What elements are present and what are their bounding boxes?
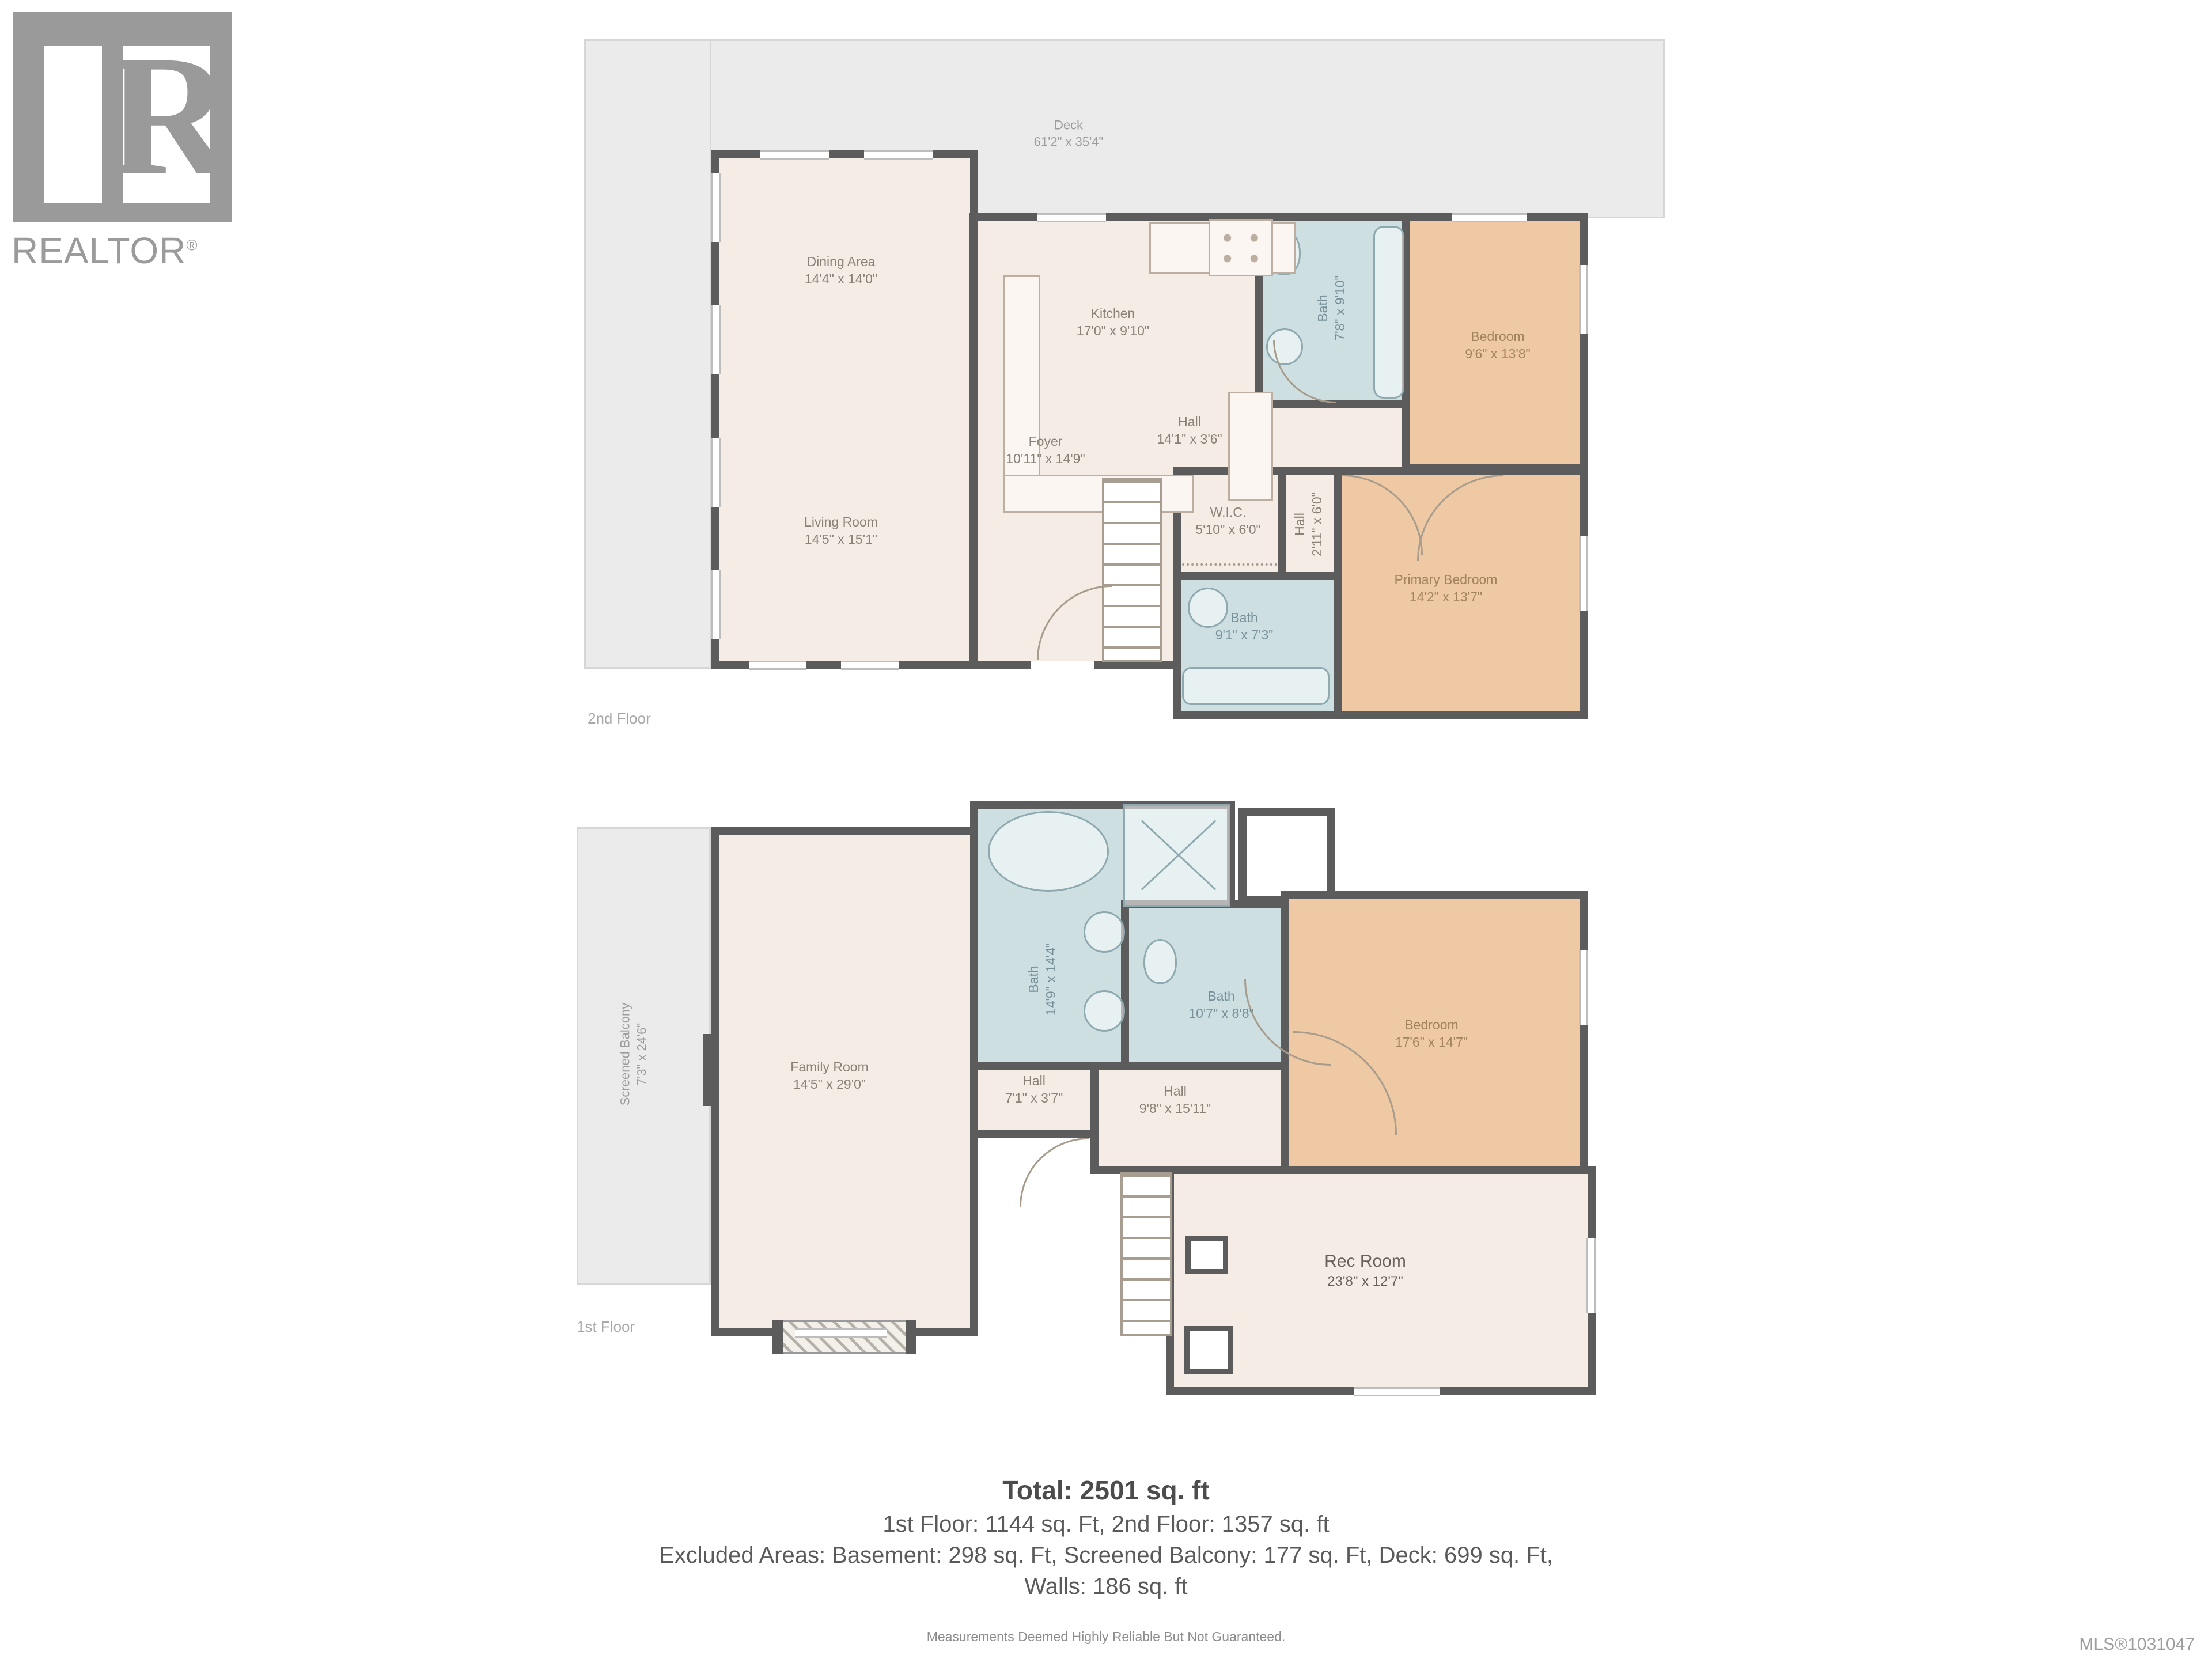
room-label-rec: Rec Room23'8" x 12'7": [1324, 1250, 1406, 1290]
window: [711, 173, 721, 242]
room-label-foyer: Foyer10'11" x 14'9": [1006, 433, 1085, 468]
window: [1586, 1238, 1596, 1313]
porch-post: [772, 1320, 783, 1354]
utility-box: [1185, 1236, 1228, 1274]
room-label-family: Family Room14'5" x 29'0": [790, 1059, 868, 1093]
bathtub: [1373, 226, 1404, 399]
closet-rod: [1182, 563, 1277, 566]
closet-1f: [1238, 808, 1335, 904]
room-label-hall-big: Hall9'8" x 15'11": [1139, 1083, 1211, 1118]
toilet: [1143, 939, 1177, 984]
window: [1354, 1387, 1440, 1396]
window: [1579, 536, 1588, 611]
room-label-kitchen: Kitchen17'0" x 9'10": [1077, 305, 1149, 340]
porch-post: [906, 1320, 916, 1354]
room-label-hall-small: Hall7'1" x 3'7": [1005, 1073, 1063, 1107]
floor-caption-1st: 1st Floor: [577, 1318, 635, 1336]
summary-walls: Walls: 186 sq. ft: [0, 1574, 2212, 1600]
window: [1452, 213, 1527, 222]
room-label-bedroom-1f: Bedroom17'6" x 14'7": [1395, 1017, 1468, 1051]
room-label-primary-bedroom: Primary Bedroom14'2" x 13'7": [1395, 571, 1498, 606]
window: [1579, 950, 1588, 1025]
deck-area-left: [584, 39, 711, 669]
door-gap: [1031, 661, 1094, 669]
window: [841, 661, 899, 670]
summary-total: Total: 2501 sq. ft: [0, 1475, 2212, 1506]
refrigerator: [1228, 392, 1273, 501]
room-label-bedroom-2f: Bedroom9'6" x 13'8": [1465, 328, 1530, 363]
window: [749, 661, 806, 670]
kitchen-counter: [1003, 475, 1194, 513]
realtor-logo-mark: R: [13, 12, 232, 222]
window: [795, 1328, 887, 1338]
stove: [1209, 219, 1273, 276]
window: [760, 150, 829, 160]
room-label-deck: Deck61'2" x 35'4": [1034, 117, 1104, 150]
room-label-bath-1f-main: Bath14'9" x 14'4": [1025, 943, 1060, 1016]
room-label-bath-2f-top: Bath7'8" x 9'10": [1315, 275, 1349, 340]
door-arc: [1020, 1138, 1089, 1207]
bathtub: [1182, 667, 1330, 705]
room-label-hall-vert: Hall2'11" x 6'0": [1291, 492, 1326, 556]
window: [711, 305, 721, 374]
window: [864, 150, 933, 160]
room-label-hall-2f: Hall14'1" x 3'6": [1157, 414, 1222, 448]
mls-number: MLS®1031047: [2079, 1635, 2195, 1654]
logo-left-bar: [44, 46, 102, 203]
floor-caption-2nd: 2nd Floor: [588, 710, 651, 728]
window: [711, 438, 721, 507]
room-label-balcony: Screened Balcony7'3" x 24'6": [617, 1003, 650, 1106]
realtor-wordmark: REALTOR®: [12, 229, 198, 272]
room-hall-2f: [1255, 400, 1421, 477]
room-label-wic: W.I.C.5'10" x 6'0": [1195, 504, 1260, 539]
disclaimer: Measurements Deemed Highly Reliable But …: [0, 1629, 2212, 1645]
room-dining-living: [711, 150, 978, 669]
registered-symbol: ®: [186, 237, 198, 254]
room-label-bath-2f-bottom: Bath9'1" x 7'3": [1215, 609, 1274, 644]
logo-r-tile: R: [123, 46, 210, 203]
window: [1579, 265, 1588, 334]
stairs-1f: [1120, 1172, 1172, 1336]
logo-r-letter: R: [123, 46, 210, 202]
utility-box: [1184, 1326, 1233, 1374]
room-hall-big-1f: [1090, 1062, 1289, 1174]
room-label-living: Living Room14'5" x 15'1": [804, 514, 878, 548]
sink: [1084, 990, 1125, 1032]
floor-plan-page: { "logo": { "brand": "REALTOR", "registe…: [0, 0, 2212, 1659]
summary-floors: 1st Floor: 1144 sq. Ft, 2nd Floor: 1357 …: [0, 1512, 2212, 1537]
bathtub: [988, 811, 1109, 892]
room-label-bath-1f-second: Bath10'7" x 8'8": [1188, 988, 1253, 1022]
sink: [1084, 911, 1125, 953]
summary-excluded: Excluded Areas: Basement: 298 sq. Ft, Sc…: [0, 1543, 2212, 1569]
room-label-dining: Dining Area14'4" x 14'0": [805, 253, 877, 288]
balcony-post: [703, 1034, 712, 1106]
window: [711, 570, 721, 639]
window: [1037, 213, 1106, 222]
